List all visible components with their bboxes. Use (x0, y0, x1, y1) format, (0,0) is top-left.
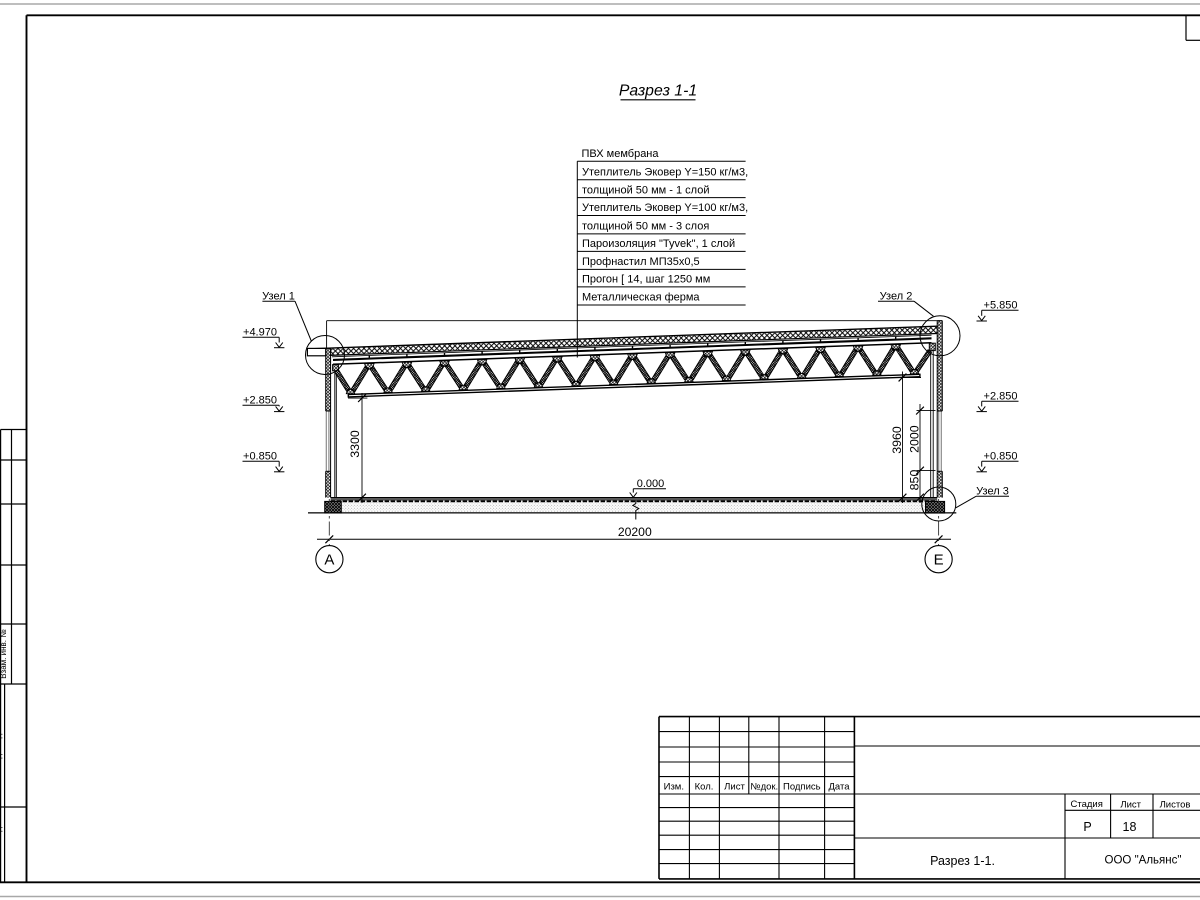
svg-text:Разрез 1-1.: Разрез 1-1. (930, 854, 995, 868)
svg-text:ПВХ мембрана: ПВХ мембрана (582, 148, 660, 160)
svg-text:Лист: Лист (1120, 800, 1141, 811)
svg-text:Разрез 1-1: Разрез 1-1 (619, 83, 697, 100)
svg-text:+4.970: +4.970 (243, 327, 277, 339)
svg-text:+5.850: +5.850 (984, 300, 1018, 312)
svg-text:ООО "Альянс": ООО "Альянс" (1105, 855, 1182, 867)
svg-text:Е: Е (934, 552, 944, 569)
svg-text:Р: Р (1083, 820, 1091, 834)
svg-text:Листов: Листов (1160, 800, 1191, 811)
svg-text:+2.850: +2.850 (243, 395, 277, 407)
svg-text:Инв. № подл.: Инв. № подл. (0, 820, 3, 870)
svg-text:20200: 20200 (618, 525, 652, 539)
svg-text:Лист: Лист (724, 782, 745, 793)
svg-text:+0.850: +0.850 (984, 451, 1018, 463)
svg-text:№док.: №док. (750, 782, 778, 793)
svg-text:Утеплитель Эковер Y=100 кг/м3,: Утеплитель Эковер Y=100 кг/м3, (582, 202, 748, 214)
svg-text:850: 850 (907, 470, 921, 491)
svg-text:Кол.: Кол. (695, 782, 714, 793)
svg-text:Прогон [ 14, шаг 1250 мм: Прогон [ 14, шаг 1250 мм (582, 274, 710, 286)
svg-text:3300: 3300 (348, 430, 362, 458)
svg-text:Металлическая ферма: Металлическая ферма (582, 292, 700, 304)
svg-text:Взам. инв. №: Взам. инв. № (0, 629, 8, 679)
svg-text:Стадия: Стадия (1071, 799, 1103, 810)
svg-text:толщиной 50 мм - 3 слоя: толщиной 50 мм - 3 слоя (582, 221, 709, 233)
svg-text:+0.850: +0.850 (243, 451, 277, 463)
svg-text:Профнастил МП35х0,5: Профнастил МП35х0,5 (582, 256, 700, 268)
svg-text:+2.850: +2.850 (984, 391, 1018, 403)
svg-text:Дата: Дата (828, 782, 850, 793)
svg-text:Утеплитель Эковер Y=150 кг/м3,: Утеплитель Эковер Y=150 кг/м3, (582, 166, 748, 178)
svg-text:Подп. и дата: Подп. и дата (0, 721, 3, 769)
svg-text:А: А (324, 552, 334, 569)
svg-text:18: 18 (1123, 820, 1137, 834)
svg-text:3960: 3960 (890, 426, 904, 454)
svg-text:Узел 3: Узел 3 (976, 486, 1009, 498)
svg-text:Изм.: Изм. (664, 782, 684, 793)
svg-text:толщиной 50 мм - 1 слой: толщиной 50 мм - 1 слой (582, 184, 709, 196)
svg-text:2000: 2000 (907, 425, 921, 453)
svg-text:Пароизоляция "Tyvek", 1 слой: Пароизоляция "Tyvek", 1 слой (582, 238, 735, 250)
svg-text:Подпись: Подпись (783, 782, 821, 793)
